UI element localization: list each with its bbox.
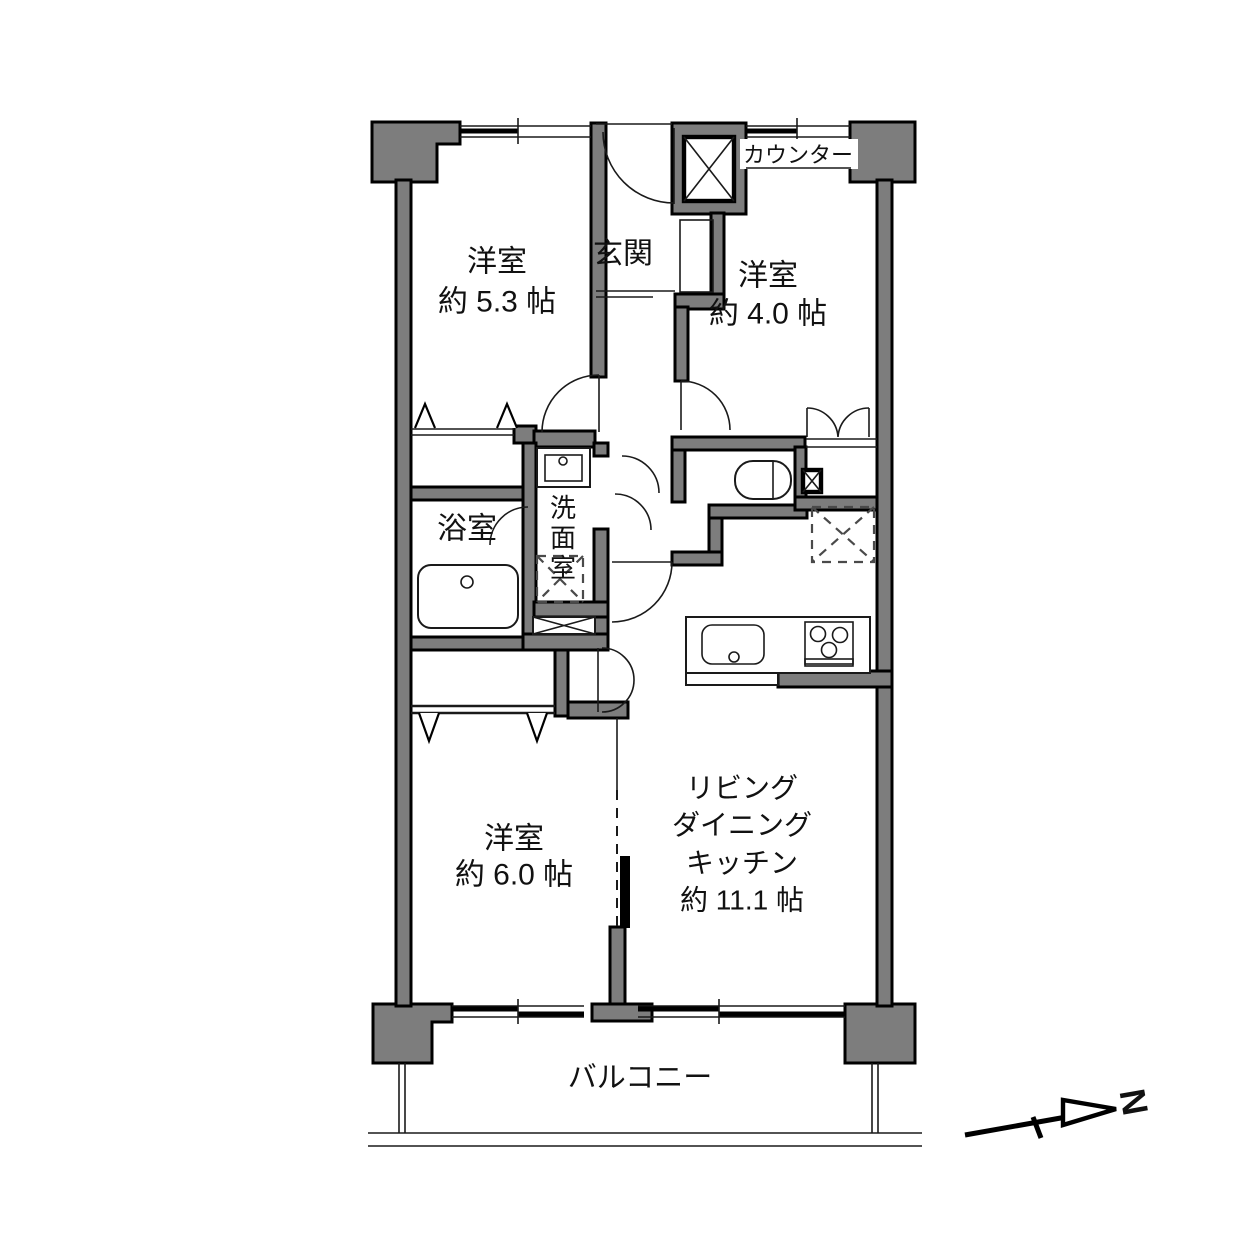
partition-stack-bar — [620, 856, 630, 928]
label-balcony: バルコニー — [568, 1062, 712, 1094]
closet40-threshold — [806, 439, 877, 447]
floor-plan: N 洋室 約 5.3 帖 玄関 カウンター 洋室 約 4.0 帖 浴室 洗 面 … — [0, 0, 1252, 1252]
wall-corridor-left-lower — [594, 529, 608, 650]
label-west60-size: 約 6.0 帖 — [455, 859, 573, 892]
refrigerator-space — [812, 507, 874, 562]
wall-partition-bottom — [610, 927, 625, 1006]
bathtub-icon — [418, 565, 518, 628]
label-bathroom: 浴室 — [437, 513, 497, 546]
wall-toilet-jog-h — [672, 552, 722, 565]
storage-door-arc-top — [602, 648, 634, 680]
wall-exterior-left — [396, 180, 411, 1006]
washroom-door-arc2 — [615, 494, 651, 530]
closet53-door-track — [411, 429, 514, 435]
closet53-fold-mark-1 — [415, 404, 435, 428]
west53-door-arc — [542, 375, 599, 432]
wall-washroom-top — [534, 431, 595, 447]
wall-bath-top — [411, 487, 523, 500]
compass-line — [965, 1116, 1072, 1135]
label-ldk-line3: キッチン — [686, 848, 798, 879]
washroom-door-arc1 — [622, 456, 659, 493]
wall-washroom-band2 — [523, 634, 608, 650]
pillar-top-left — [372, 122, 460, 182]
label-west53-name: 洋室 — [467, 246, 527, 279]
duct-x-icon — [533, 617, 595, 634]
label-washroom-char3: 室 — [550, 553, 576, 583]
pillar-top-right — [850, 122, 915, 182]
floor-plan-page: N 洋室 約 5.3 帖 玄関 カウンター 洋室 約 4.0 帖 浴室 洗 面 … — [0, 0, 1252, 1252]
label-ldk: リビング ダイニング キッチン 約 11.1 帖 — [672, 773, 812, 916]
label-washroom-char1: 洗 — [550, 493, 576, 523]
label-ldk-line1: リビング — [686, 773, 798, 804]
west40-door-arc — [681, 381, 730, 430]
washbasin-icon — [537, 448, 590, 487]
ps-shaft-icon — [684, 137, 734, 201]
label-west40-size: 約 4.0 帖 — [709, 298, 827, 331]
ldk-door-arc — [612, 562, 672, 622]
wall-washroom-band1 — [534, 602, 608, 617]
wall-west40-left — [675, 307, 688, 381]
label-washroom-char2: 面 — [550, 523, 576, 553]
entrance-door-arc — [603, 132, 674, 203]
wall-exterior-right — [877, 180, 892, 1006]
label-ldk-size: 約 11.1 帖 — [680, 885, 804, 916]
label-washroom-vertical: 洗 面 室 — [550, 493, 576, 583]
pillar-bottom-right — [845, 1004, 915, 1063]
balcony-rail-right — [872, 1063, 878, 1133]
closet53-fold-mark-2 — [497, 404, 517, 428]
wall-toilet-left — [672, 450, 685, 502]
genkan-step-lines — [596, 291, 675, 297]
shoe-cabinet — [680, 220, 713, 292]
closet60-fold-mark-2 — [527, 713, 547, 741]
compass-arrowhead — [1063, 1100, 1116, 1125]
label-counter: カウンター — [743, 143, 853, 168]
compass-north-arrow: N — [965, 1086, 1156, 1138]
wall-corridor-left-mid — [594, 443, 608, 456]
closet40-door-arcs — [807, 408, 869, 437]
balcony-rail-left — [399, 1063, 405, 1133]
label-west40-name: 洋室 — [738, 260, 798, 293]
label-west60-name: 洋室 — [484, 823, 544, 856]
wall-closet60-right — [555, 650, 568, 716]
balcony-edge-lines — [368, 1133, 922, 1146]
closet60-door-track — [411, 706, 555, 713]
compass-label: N — [1112, 1086, 1157, 1119]
closet60-fold-mark-1 — [419, 713, 439, 741]
label-ldk-line2: ダイニング — [672, 810, 812, 841]
ps-mini-icon — [803, 470, 821, 492]
pillar-bottom-left — [373, 1004, 452, 1063]
label-west53-size: 約 5.3 帖 — [438, 286, 556, 319]
toilet-icon — [735, 461, 791, 499]
wall-toilet-bottom — [709, 505, 807, 518]
fixtures — [418, 137, 874, 685]
wall-toilet-top — [672, 437, 805, 450]
label-entrance: 玄関 — [593, 238, 653, 271]
